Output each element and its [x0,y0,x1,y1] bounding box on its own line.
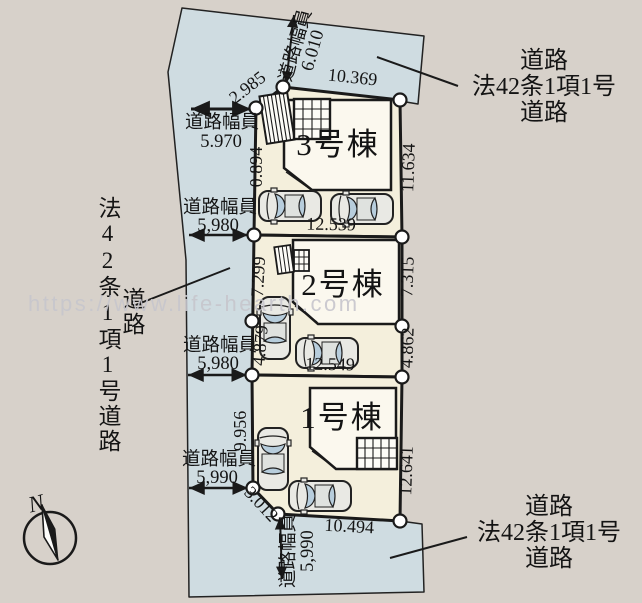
building-label-3: 3号棟 [296,127,380,162]
compass-icon: N [24,489,76,564]
dimension-lot3-right: 11.634 [397,143,419,193]
road-width-value-bottom: 5,990 [298,530,318,572]
dimension-lot2-left-upper: 7.299 [247,256,269,297]
dimension-lot2-right-upper: 7.315 [396,256,417,297]
bottom-right-road-label-line1: 道路 [460,494,638,520]
dimension-lot1-right: 12.641 [395,446,417,496]
car-icon [289,478,351,514]
balcony-grid-building-1 [357,438,397,469]
building-label-1: 1号棟 [300,400,384,435]
stairs-hatch-building-3 [259,92,294,144]
bottom-right-road-label-line2: 法42条1項1号 [460,520,638,546]
top-right-road-label: 道路 法42条1項1号 道路 [453,48,635,126]
building-label-2: 2号棟 [301,267,385,302]
road-width-caption-left-4: 道路幅員 [182,449,256,470]
road-width-caption-left-3: 道路幅員 [183,335,257,356]
boundary-node [394,515,407,528]
dimension-lot3-left: 0.894 [246,147,266,188]
dimension-lot1-left: 9.956 [230,411,250,452]
bottom-right-road-label-line3: 道路 [460,546,638,572]
boundary-node [394,94,407,107]
left-road-law-label: 法42条1項1号道路 [94,196,120,454]
road-width-value-left-1: 5.970 [200,132,242,152]
site-plan: 3号棟 2号棟 1号棟 2.985 10.369 0.894 11.634 12… [0,0,642,603]
dimension-lot1-bottom: 10.494 [324,515,374,538]
boundary-node [396,231,409,244]
left-road-label: 道路 [118,287,144,337]
stairs-hatch-building-2 [274,245,294,274]
road-width-value-left-3: 5,980 [197,354,239,374]
boundary-node [246,369,259,382]
road-width-caption-left-2: 道路幅員 [183,197,257,218]
top-right-road-label-line3: 道路 [453,100,635,126]
top-right-road-label-line1: 道路 [453,48,635,74]
road-width-value-left-2: 5,980 [197,216,239,236]
boundary-node [248,229,261,242]
road-width-value-left-4: 5,990 [196,468,238,488]
dimension-lot2-right-lower: 4.862 [396,327,417,368]
compass-north-label: N [25,489,49,518]
dimension-lot2-bottom: 12.549 [305,354,355,375]
top-right-road-label-line2: 法42条1項1号 [453,74,635,100]
road-width-caption-bottom: 道路幅員 [278,514,299,588]
bottom-right-road-label: 道路 法42条1項1号 道路 [460,494,638,572]
boundary-node [396,371,409,384]
car-icon [255,428,291,490]
dimension-lot3-bottom: 12.539 [306,214,356,235]
road-width-caption-left-1: 道路幅員 [185,112,259,133]
